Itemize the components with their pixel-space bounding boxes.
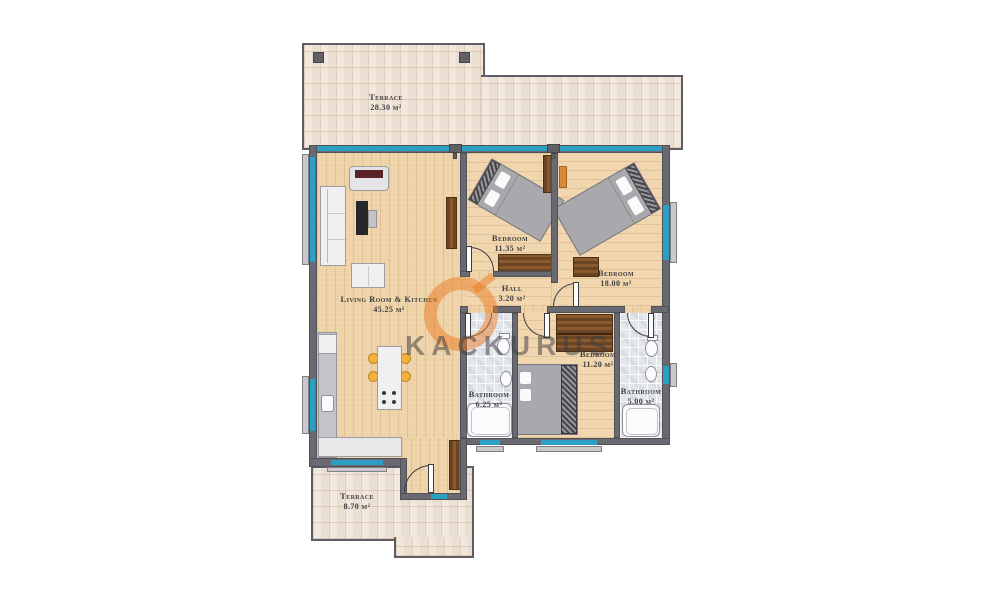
window-sill <box>536 446 602 452</box>
window-right-bedroom <box>663 205 669 260</box>
window-left-living <box>310 157 315 262</box>
kitchen-sink <box>321 395 334 412</box>
wall-segment <box>547 306 625 313</box>
sideboard <box>446 197 457 249</box>
window-mullion <box>449 144 462 153</box>
window-sill <box>302 376 309 434</box>
refrigerator <box>318 334 337 354</box>
wall-segment <box>651 306 669 313</box>
window-left-kitchen <box>310 379 315 431</box>
tv <box>356 201 368 235</box>
door-leaf <box>466 246 472 272</box>
window-sill <box>327 467 387 472</box>
window-sill <box>670 202 677 263</box>
bench <box>559 166 567 188</box>
door-leaf <box>648 313 654 338</box>
wall-segment <box>493 271 558 277</box>
fireplace <box>349 166 389 191</box>
dresser <box>573 257 599 277</box>
wall-segment <box>460 438 467 500</box>
door-leaf <box>428 464 434 493</box>
kitchen-counter-bottom <box>318 437 402 457</box>
watermark-text: KACKURUS <box>405 330 600 362</box>
window-sill <box>670 363 677 387</box>
sofa <box>320 186 346 266</box>
window-top-band <box>317 146 662 151</box>
window-mullion <box>453 153 457 159</box>
bathtub <box>622 404 660 437</box>
window-sill <box>476 446 504 452</box>
window-mullion <box>547 144 560 153</box>
terrace-top-right <box>481 75 683 150</box>
window-right-bathroom <box>663 366 669 384</box>
terrace-step <box>394 547 474 558</box>
door-leaf <box>573 282 579 307</box>
kitchen-island <box>377 346 402 410</box>
door-threshold <box>431 494 447 499</box>
window-kitchen-bottom <box>331 460 383 465</box>
bed <box>516 364 578 435</box>
terrace-top-left <box>302 43 485 150</box>
wall-segment <box>551 153 558 283</box>
wall-segment <box>662 145 670 445</box>
window-bedroom-bottom <box>541 440 597 445</box>
window-mullion <box>551 153 555 159</box>
window-sill <box>302 154 309 265</box>
sink <box>500 371 512 387</box>
toilet <box>645 340 658 357</box>
loveseat <box>351 263 385 288</box>
window-bathroom-bottom <box>480 440 500 445</box>
terrace-pillar <box>313 52 324 63</box>
tv-stand <box>368 210 377 228</box>
sink <box>645 366 657 382</box>
bathtub <box>467 403 512 437</box>
terrace-pillar <box>459 52 470 63</box>
wall-segment <box>614 313 620 438</box>
floor-plan: Terrace 28.30 m² Living Room & Kitchen 4… <box>0 0 1000 600</box>
